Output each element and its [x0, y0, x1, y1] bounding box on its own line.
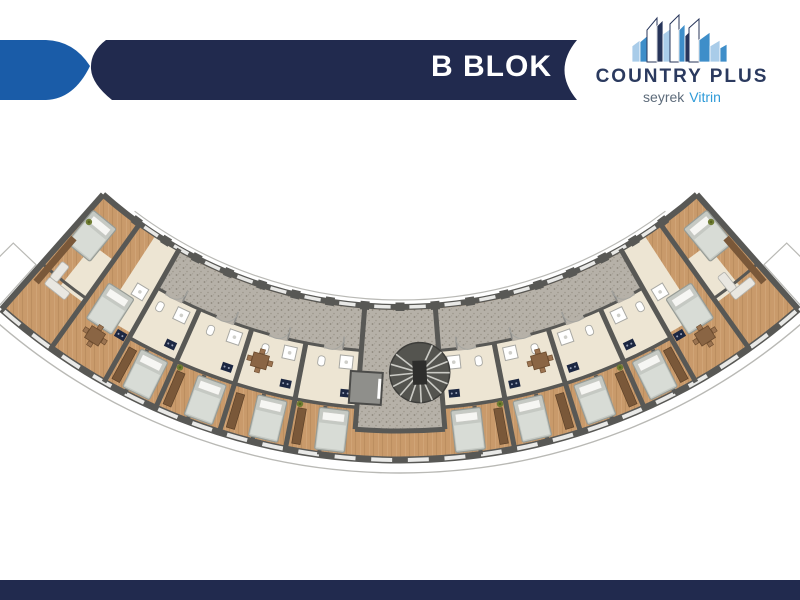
chair	[548, 355, 554, 361]
footer-bar	[0, 580, 800, 600]
chair	[267, 361, 273, 367]
chair	[260, 349, 266, 355]
logo-wordmark: COUNTRY PLUS	[592, 66, 772, 88]
blanket	[454, 422, 484, 450]
stove	[448, 389, 460, 398]
window	[409, 306, 425, 307]
elevator	[349, 371, 383, 405]
blanket	[316, 422, 346, 450]
window	[374, 306, 390, 307]
stove-top	[448, 389, 460, 398]
window	[339, 303, 355, 305]
toilet-bowl	[474, 355, 482, 366]
pier	[570, 269, 573, 277]
pier	[504, 290, 506, 298]
wall	[355, 429, 445, 431]
window	[335, 456, 356, 458]
pier	[329, 297, 330, 305]
bed	[451, 407, 486, 452]
pier	[294, 290, 296, 298]
logo-tagline-right: Vitrin	[689, 89, 721, 105]
skyline-icon	[630, 14, 734, 64]
stair-core	[412, 360, 427, 385]
logo-tagline-left: seyrek	[643, 89, 684, 105]
shower	[503, 345, 519, 361]
chair	[527, 361, 533, 367]
logo-tagline: seyrekVitrin	[592, 89, 772, 105]
pier	[537, 281, 540, 289]
pier	[260, 281, 263, 289]
window	[444, 456, 465, 458]
slide-page: B BLOK COUNTRY PLUS seyrekVitrin	[0, 0, 800, 600]
pier	[195, 254, 199, 262]
toilet	[474, 355, 482, 366]
pier	[601, 254, 605, 262]
chair	[247, 355, 253, 361]
pier	[469, 297, 470, 305]
chair	[254, 367, 260, 373]
pier	[632, 237, 636, 244]
toilet-bowl	[317, 355, 325, 366]
chair	[540, 367, 546, 373]
shower	[282, 345, 298, 361]
ribbon-left-accent	[0, 40, 90, 100]
company-logo: COUNTRY PLUS seyrekVitrin	[592, 14, 772, 105]
window	[445, 303, 461, 305]
bed	[315, 407, 350, 452]
pier	[227, 269, 230, 277]
shower	[339, 355, 353, 369]
pier	[164, 237, 168, 244]
window	[371, 459, 392, 460]
page-title: B BLOK	[240, 52, 552, 82]
window	[408, 459, 429, 460]
elevator-cab	[349, 371, 383, 405]
chair	[534, 349, 540, 355]
toilet	[317, 355, 325, 366]
